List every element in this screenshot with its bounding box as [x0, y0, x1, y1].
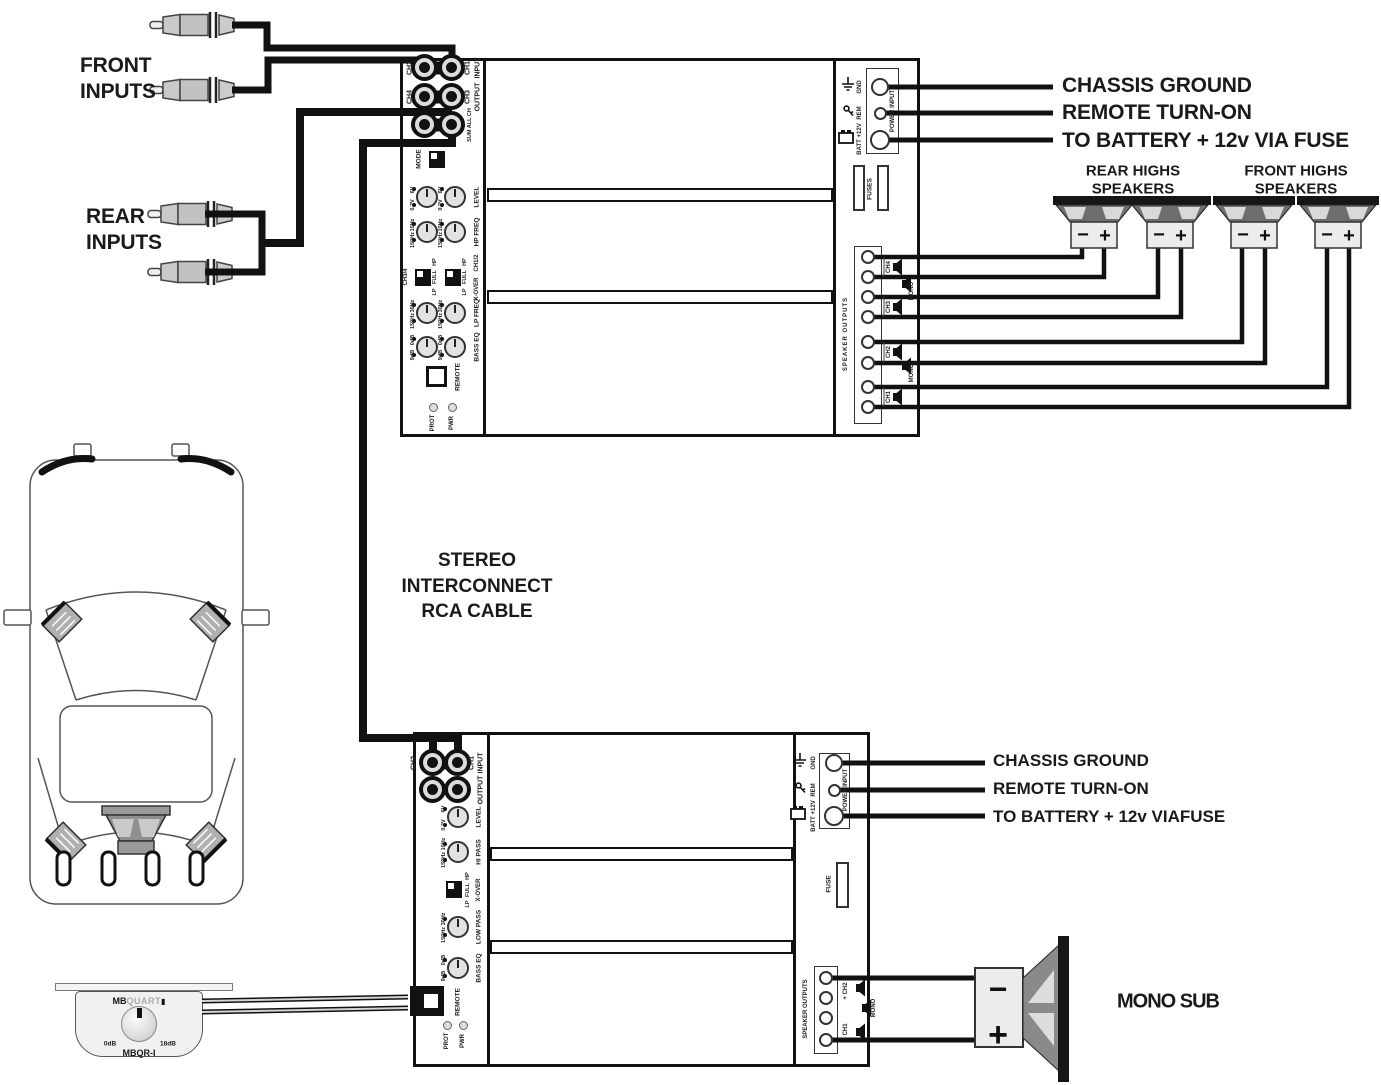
amp2-spk-terminal-4: [819, 1033, 833, 1047]
amp1-level-tick-min: 0.2V: [438, 199, 444, 210]
amp1-speaker-wires: [868, 248, 1349, 407]
car-top-view: [4, 444, 269, 904]
amp2-output-jack-right: [444, 776, 471, 803]
amp2-basseq-knob: [447, 957, 469, 979]
rear-input-cable-1: [205, 214, 262, 243]
logo-mb: MB: [113, 996, 127, 1006]
amp1-input-jack-ch1: [438, 54, 465, 81]
amp1-spk-terminal-6: [861, 356, 875, 370]
amp2-output-label: OUTPUT: [478, 776, 485, 805]
amp1-hpfreq-knob-ch12: [444, 221, 466, 243]
amp2-xover-hp-label: HP: [465, 872, 471, 880]
amp1-out-mono2-label: MONO: [909, 364, 915, 383]
amp2-xover-switch: [446, 881, 462, 898]
rear-highs-label-line2: SPEAKERS: [1092, 181, 1175, 198]
speaker-plus-terminal: +: [1175, 225, 1187, 247]
amp1-lpfreq-knob-ch34: [416, 302, 438, 324]
amp1-out-ch4-label: CH4: [886, 261, 892, 273]
amp2-gnd-terminal: [825, 754, 843, 772]
amp1-mode-switch: [429, 151, 445, 168]
amp2-rem-terminal: [828, 784, 841, 797]
amp1-level-tick-max: 6V: [410, 187, 416, 194]
amp1-remote-label: REMOTE: [455, 363, 462, 391]
amp2-power-input-label: POWER INPUT: [843, 769, 849, 811]
amp1-xover12-full-label: FULL: [462, 270, 468, 284]
amp1-level-knob-ch34: [416, 186, 438, 208]
mono-subwoofer: − +: [975, 936, 1069, 1082]
amp1-mode-label: MODE: [416, 149, 423, 169]
amp2-level-knob: [447, 806, 469, 828]
amp1-spk-terminal-4: [861, 310, 875, 324]
front-rca-plug-1: [150, 12, 234, 38]
amp1-right-divider: [833, 58, 836, 437]
amp1-speaker-outputs-label: SPEAKER OUTPUTS: [843, 297, 849, 371]
amp1-output-label: OUTPUT: [475, 83, 482, 112]
amp2-out-mono-label: MONO: [871, 999, 877, 1018]
amp1-basseq-label: BASS EQ: [474, 332, 481, 361]
amp2-level-label: LEVEL: [476, 807, 483, 828]
remote-0db-tick: 0dB: [104, 1041, 116, 1048]
amp1-power-input-label: POWER INPUT: [890, 90, 896, 132]
amp1-level-knob-ch12: [444, 186, 466, 208]
interconnect-label-line1: STEREO: [438, 550, 516, 572]
amp1-input-jack-ch3: [438, 83, 465, 110]
amp1-lpfreq-knob-ch12: [444, 302, 466, 324]
bottom-remote-turnon-label: REMOTE TURN-ON: [993, 779, 1149, 799]
rear-input-cable-2: [205, 243, 262, 272]
amp1-out-ch1-label: CH1: [886, 391, 892, 403]
amp2-basseq-tick-max: 9dB: [441, 971, 447, 981]
amp1-heatsink-bar-bottom: [487, 290, 833, 304]
amp2-rem-label: REM: [811, 783, 817, 796]
amp1-spk-terminal-3: [861, 290, 875, 304]
amp1-remote-jack: [426, 366, 447, 387]
amp1-lpfreq-tick-max: 150Hz: [410, 313, 416, 329]
amp1-output-jack-left: [411, 111, 438, 138]
amp1-fuses-label: FUSES: [867, 178, 874, 200]
amp1-basseq-knob-ch34: [416, 336, 438, 358]
bottom-battery-label: TO BATTERY + 12v VIAFUSE: [993, 807, 1225, 827]
amp2-hipass-label: HI PASS: [476, 839, 483, 865]
rear-right-speaker: − +: [1129, 196, 1211, 248]
amp1-basseq-knob-ch12: [444, 336, 466, 358]
amp2-fuse-label: FUSE: [826, 875, 833, 892]
amp2-batt-label: BATT +12V: [811, 800, 817, 831]
speaker-plus-terminal: +: [1099, 225, 1111, 247]
logo-cube-icon: ▮: [161, 997, 165, 1006]
amp2-spk-terminal-1: [819, 971, 833, 985]
front-highs-label-line2: SPEAKERS: [1255, 181, 1338, 198]
amp1-level-tick-min: 0.2V: [410, 199, 416, 210]
amplifier-wiring-diagram: − + − + − + − +: [0, 0, 1381, 1085]
amp1-batt-terminal: [870, 130, 890, 150]
amp2-lowpass-tick-max: 150Hz: [441, 927, 447, 943]
amp1-level-tick-max: 6V: [438, 187, 444, 194]
remote-cable: [202, 986, 444, 1016]
amp1-lpfreq-label: LP FREQ: [474, 299, 481, 327]
speaker-minus-terminal: −: [1077, 224, 1089, 246]
speaker-minus-terminal: −: [1237, 224, 1249, 246]
amp1-spk-terminal-7: [861, 380, 875, 394]
amp1-heatsink-bar-top: [487, 188, 833, 202]
amp1-out-ch2-label: CH2: [886, 346, 892, 358]
amp1-output-jack-right: [438, 111, 465, 138]
bottom-chassis-ground-label: CHASSIS GROUND: [993, 751, 1149, 771]
interconnect-label-line3: RCA CABLE: [421, 601, 532, 623]
interconnect-label-line2: INTERCONNECT: [402, 576, 553, 598]
top-remote-turnon-label: REMOTE TURN-ON: [1062, 101, 1252, 125]
amp2-pwr-led: [459, 1021, 468, 1030]
amp1-xover-switch-ch12: [445, 269, 461, 286]
amp2-input-jack-ch1: [444, 749, 471, 776]
amp2-heatsink-bar-bottom: [490, 940, 793, 954]
speaker-minus-terminal: −: [1321, 224, 1333, 246]
front-rca-plug-2: [150, 77, 234, 103]
amp2-lowpass-label: LOW PASS: [476, 910, 483, 944]
amp1-xover-switch-ch34: [415, 269, 431, 286]
amp2-prot-label: PROT: [444, 1033, 450, 1050]
rear-rca-plug-1: [148, 201, 232, 227]
rear-inputs-label-line2: INPUTS: [86, 231, 162, 255]
amp1-input-jack-ch2: [411, 54, 438, 81]
front-input-cable-2: [232, 60, 425, 90]
amp1-ch34-column-label: CH3/4: [403, 268, 409, 285]
amp1-fuse-2: [877, 165, 889, 211]
amp2-remote-label: REMOTE: [455, 988, 462, 1016]
amp1-lpfreq-tick-min: 30Hz: [410, 300, 416, 313]
logo-quart: QUART: [127, 996, 162, 1006]
amp2-prot-led: [443, 1021, 452, 1030]
four-channel-amplifier-body: [400, 58, 920, 437]
front-highs-label-line1: FRONT HIGHS: [1244, 163, 1347, 180]
amp1-out-mono1-label: MONO: [909, 282, 915, 301]
amp1-xover12-hp-label: HP: [462, 258, 468, 266]
top-chassis-ground-label: CHASSIS GROUND: [1062, 74, 1252, 98]
amp1-hpfreq-tick-min: 10Hz: [410, 219, 416, 232]
amp1-left-divider: [483, 58, 486, 437]
amp2-level-tick-min: 0.2V: [441, 819, 447, 830]
amp1-hpfreq-tick-max: 150Hz: [438, 232, 444, 248]
rear-left-speaker: − +: [1053, 196, 1135, 248]
amp2-basseq-label: BASS EQ: [476, 953, 483, 982]
amp1-basseq-tick-min: 0dB: [438, 335, 444, 345]
amp1-spk-terminal-2: [861, 270, 875, 284]
amp1-level-label: LEVEL: [474, 187, 481, 208]
amp1-lpfreq-tick-max: 150Hz: [438, 313, 444, 329]
rear-rca-plug-2: [148, 259, 232, 285]
amp1-hpfreq-knob-ch34: [416, 221, 438, 243]
amp2-level-tick-max: 6V: [441, 806, 447, 813]
amp1-input-jack-ch4: [411, 83, 438, 110]
amp2-xover-full-label: FULL: [465, 883, 471, 897]
amp1-xover34-full-label: FULL: [432, 270, 438, 284]
amp2-lowpass-tick-min: 30Hz: [441, 913, 447, 926]
amp2-hipass-tick-max: 150Hz: [441, 852, 447, 868]
amp1-ch2-label: CH2: [407, 61, 414, 75]
amp1-ch4-label: CH4: [407, 90, 414, 104]
amp2-output-jack-left: [419, 776, 446, 803]
amp2-lowpass-knob: [447, 916, 469, 938]
mono-sub-label: MONO SUB: [1117, 991, 1219, 1014]
amp1-out-ch3-label: CH3: [886, 301, 892, 313]
amp1-gnd-label: GND: [857, 80, 863, 93]
speaker-minus-terminal: −: [1153, 224, 1165, 246]
speaker-plus-terminal: +: [1259, 225, 1271, 247]
amp2-ch1-label: CH1: [469, 756, 476, 770]
amp1-basseq-tick-max: 9dB: [410, 350, 416, 360]
amp1-input-label: INPUT: [475, 58, 482, 79]
amp1-spk-terminal-1: [861, 250, 875, 264]
amp2-fuse: [836, 862, 849, 908]
amp1-hpfreq-tick-min: 10Hz: [438, 219, 444, 232]
amp1-prot-label: PROT: [430, 415, 436, 432]
amp1-pwr-label: PWR: [449, 416, 455, 430]
amp2-xover-label: X-OVER: [476, 878, 482, 901]
amp1-basseq-tick-max: 9dB: [438, 350, 444, 360]
amp1-sum-all-ch-label: SUM ALL CH: [467, 108, 473, 142]
amp2-input-label: INPUT: [478, 753, 485, 774]
amp1-basseq-tick-min: 0dB: [410, 335, 416, 345]
bass-remote-knob: [121, 1006, 157, 1042]
mb-quart-logo: MBQUART▮: [113, 996, 166, 1006]
amp1-ch3-label: CH3: [465, 90, 472, 104]
amp2-basseq-tick-min: 0dB: [441, 955, 447, 965]
amp2-input-jack-ch2: [419, 749, 446, 776]
amp2-ch2-label: CH2: [411, 756, 418, 770]
amp2-xover-lp-label: LP: [465, 900, 471, 907]
amp1-fuse-1: [853, 165, 865, 211]
amp1-hpfreq-label: HP FREQ: [474, 218, 481, 247]
rear-inputs-label-line1: REAR: [86, 205, 145, 229]
amp2-gnd-label: GND: [811, 756, 817, 769]
amp1-spk-terminal-5: [861, 335, 875, 349]
amp2-left-divider: [487, 732, 490, 1067]
amp1-hpfreq-tick-max: 150Hz: [410, 232, 416, 248]
amp2-out-ch1-label: − CH1: [843, 1023, 849, 1040]
amp2-spk-terminal-3: [819, 1011, 833, 1025]
amp1-batt-label: BATT +12V: [857, 123, 863, 154]
rear-highs-label-line1: REAR HIGHS: [1086, 163, 1180, 180]
remote-18db-tick: 18dB: [160, 1041, 176, 1048]
amp2-right-divider: [793, 732, 796, 1067]
front-inputs-label-line1: FRONT: [80, 54, 151, 78]
amp2-heatsink-bar-top: [490, 847, 793, 861]
amp1-rem-terminal: [874, 107, 887, 120]
front-inputs-label-line2: INPUTS: [80, 80, 156, 104]
amp1-ch12-column-label: CH1/2: [474, 254, 480, 271]
amp1-xover-label: X-OVER: [474, 277, 480, 300]
front-right-speaker: − +: [1297, 196, 1379, 248]
amp2-out-ch2-label: + CH2: [843, 982, 849, 999]
amp2-pwr-label: PWR: [460, 1034, 466, 1048]
amp1-xover34-hp-label: HP: [432, 258, 438, 266]
amp1-prot-led: [429, 403, 438, 412]
amp2-spk-terminal-2: [819, 991, 833, 1005]
amp1-lpfreq-tick-min: 30Hz: [438, 300, 444, 313]
speaker-plus-terminal: +: [1343, 225, 1355, 247]
sub-plus-terminal: +: [988, 1016, 1008, 1054]
front-left-speaker: − +: [1213, 196, 1295, 248]
amp2-hipass-knob: [447, 841, 469, 863]
amp1-gnd-terminal: [871, 78, 889, 96]
amp2-speaker-outputs-label: SPEAKER OUTPUTS: [803, 979, 809, 1038]
amp2-batt-terminal: [824, 806, 844, 826]
bass-remote-mounting-plate: [55, 983, 233, 991]
amp1-xover12-lp-label: LP: [462, 288, 468, 295]
amp1-xover34-lp-label: LP: [432, 288, 438, 295]
remote-model-label: MBQR-I: [123, 1048, 156, 1058]
amp1-ch1-label: CH1: [465, 61, 472, 75]
top-battery-label: TO BATTERY + 12v VIA FUSE: [1062, 129, 1349, 153]
amp1-rem-label: REM: [857, 106, 863, 119]
amp2-hipass-tick-min: 10Hz: [441, 838, 447, 851]
amp1-pwr-led: [448, 403, 457, 412]
amp1-spk-terminal-8: [861, 400, 875, 414]
sub-minus-terminal: −: [989, 971, 1008, 1007]
